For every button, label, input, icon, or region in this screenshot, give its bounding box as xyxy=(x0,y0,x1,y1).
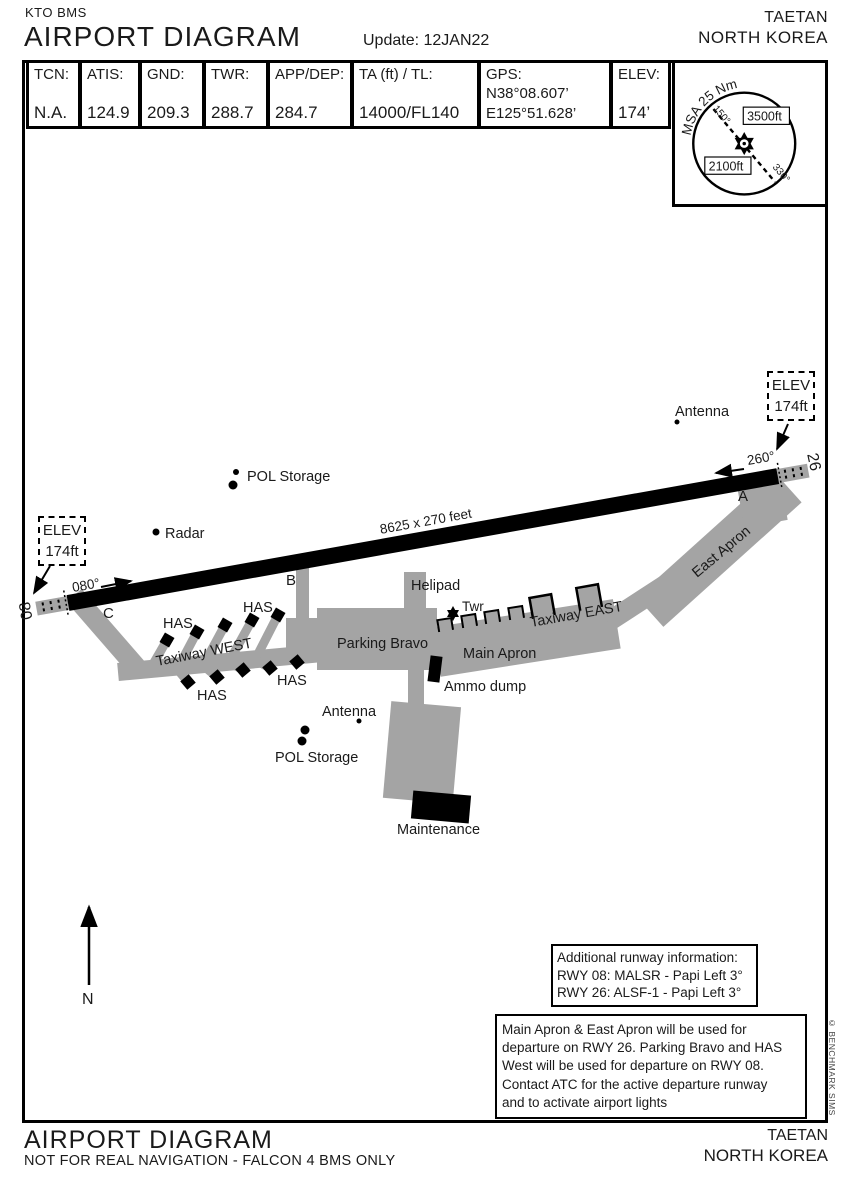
has-label: HAS xyxy=(243,600,273,616)
ammo-dump-label: Ammo dump xyxy=(444,679,526,695)
radar-label: Radar xyxy=(165,526,205,542)
has-label: HAS xyxy=(163,616,193,632)
taxiway-a-label: A xyxy=(738,488,748,505)
antenna-south-label: Antenna xyxy=(322,704,377,720)
helipad-label: Helipad xyxy=(411,578,460,594)
copyright-text: © BENCHMARK SIMS xyxy=(827,1018,837,1116)
runway-08-number: 08 xyxy=(17,600,37,621)
departure-note-box: Main Apron & East Apron will be used for… xyxy=(495,1014,807,1119)
footer-title: AIRPORT DIAGRAM xyxy=(24,1126,273,1155)
pol-storage-south-label: POL Storage xyxy=(275,750,358,766)
hdg-260-arrow xyxy=(716,469,744,473)
runway-26-number: 26 xyxy=(803,452,823,473)
pol-storage-north-dot xyxy=(233,469,239,475)
runway-08-displaced-threshold xyxy=(35,596,69,615)
taxiway-b-label: B xyxy=(286,572,296,589)
elev-box-east: ELEV 174ft xyxy=(767,371,815,421)
maintenance-building xyxy=(411,791,471,824)
main-apron-label: Main Apron xyxy=(463,646,536,662)
radar-dot xyxy=(153,529,160,536)
elev-east-arrow xyxy=(777,424,788,449)
taxiway-b xyxy=(296,568,309,626)
has-label: HAS xyxy=(277,673,307,689)
maintenance-area xyxy=(383,701,461,804)
north-label: N xyxy=(82,991,94,1008)
elev-west-arrow xyxy=(34,566,50,593)
footer-disclaimer: NOT FOR REAL NAVIGATION - FALCON 4 BMS O… xyxy=(24,1153,395,1169)
antenna-northeast-label: Antenna xyxy=(675,404,730,420)
runway-26-displaced-threshold xyxy=(777,464,810,483)
hdg-260-label: 260° xyxy=(746,448,776,468)
location-footer: TAETAN NORTH KOREA xyxy=(704,1126,828,1166)
pol-storage-north-label: POL Storage xyxy=(247,469,330,485)
parking-bravo-label: Parking Bravo xyxy=(337,636,428,652)
taxiway-c-label: C xyxy=(103,605,114,622)
footer-city: TAETAN xyxy=(704,1126,828,1146)
airport-diagram-page: KTO BMS AIRPORT DIAGRAM Update: 12JAN22 … xyxy=(0,0,850,1181)
has-label: HAS xyxy=(197,688,227,704)
antenna-northeast-dot xyxy=(675,420,680,425)
runway-info-box: Additional runway information: RWY 08: M… xyxy=(551,944,758,1007)
pol-storage-south-dot xyxy=(301,726,310,735)
tower-label: Twr xyxy=(462,599,484,614)
elev-box-west: ELEV 174ft xyxy=(38,516,86,566)
footer-country: NORTH KOREA xyxy=(704,1146,828,1166)
maintenance-label: Maintenance xyxy=(397,822,480,838)
